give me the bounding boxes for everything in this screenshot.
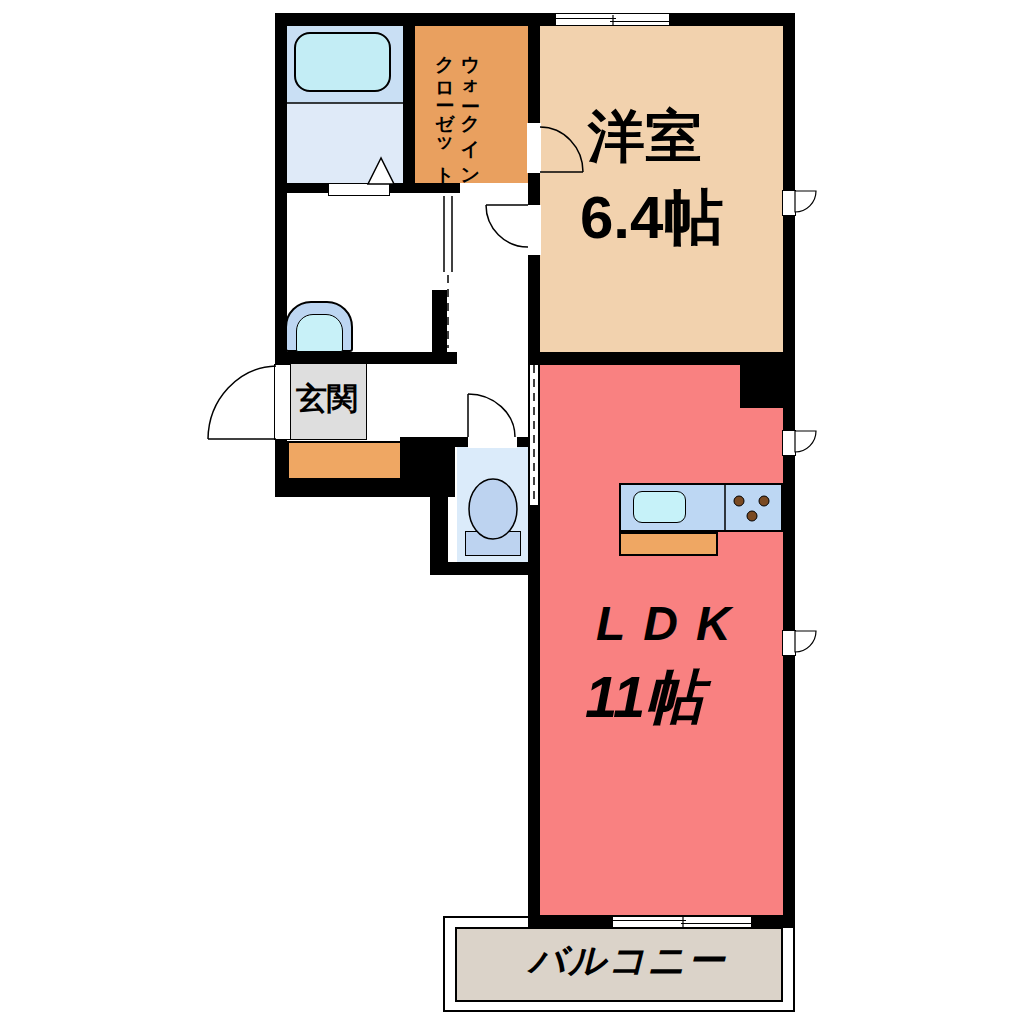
western-room-area: 6.4帖 [580, 188, 723, 248]
hall-door-arc [486, 205, 528, 247]
service-door-arc-2 [795, 431, 816, 452]
ldk-sliding-opening [528, 365, 540, 505]
western-room-door-opening [527, 123, 541, 173]
wall-ldk-west [528, 505, 540, 928]
entrance-door-opening [274, 364, 291, 440]
walk-in-closet-label: ウォークイン クローゼット [432, 42, 483, 192]
ldk-label: LDK [596, 600, 749, 648]
closet-label-col-right: ウォークイン [458, 42, 484, 192]
hall-door-opening [527, 205, 541, 255]
bathtub-icon [294, 32, 391, 92]
entrance-step [287, 441, 403, 480]
balcony-label: バルコニー [528, 942, 726, 979]
service-door-opening-2 [782, 430, 796, 456]
wall-toilet-bottom [448, 562, 540, 575]
window-balcony [612, 916, 752, 928]
toilet-door-opening [468, 436, 517, 448]
service-door-arc-1 [795, 191, 816, 212]
western-room-label: 洋室 [588, 108, 702, 165]
bathroom-lower-floor [287, 103, 403, 183]
wall-ldk-notch [740, 352, 795, 408]
toilet-tank-icon [465, 531, 521, 556]
closet-label-col-left: クローゼット [432, 42, 458, 192]
wall-right [783, 13, 795, 928]
service-door-opening-1 [782, 190, 796, 216]
floorplan-canvas: 洋室 6.4帖 ウォークイン クローゼット 玄関 LDK 11帖 バルコニー [0, 0, 1020, 1020]
toilet-door-arc [468, 394, 515, 437]
service-door-opening-3 [782, 630, 796, 656]
wall-toilet-left [430, 480, 448, 575]
wall-bottom-left [275, 480, 405, 497]
wall-washroom-stub [432, 290, 447, 352]
wall-bath-closet [403, 25, 415, 193]
entrance-door-arc [208, 366, 276, 439]
ldk-area: 11帖 [585, 668, 703, 726]
kitchen-sink-icon [633, 491, 686, 523]
service-door-arc-3 [795, 631, 816, 652]
window-top [555, 13, 670, 26]
washbasin-bowl-icon [296, 314, 343, 352]
entrance-label: 玄関 [296, 383, 358, 414]
kitchen-step [619, 532, 718, 556]
wall-washroom-bottom [275, 352, 457, 364]
bath-door-opening [328, 183, 390, 196]
wall-closet-east [528, 13, 540, 365]
